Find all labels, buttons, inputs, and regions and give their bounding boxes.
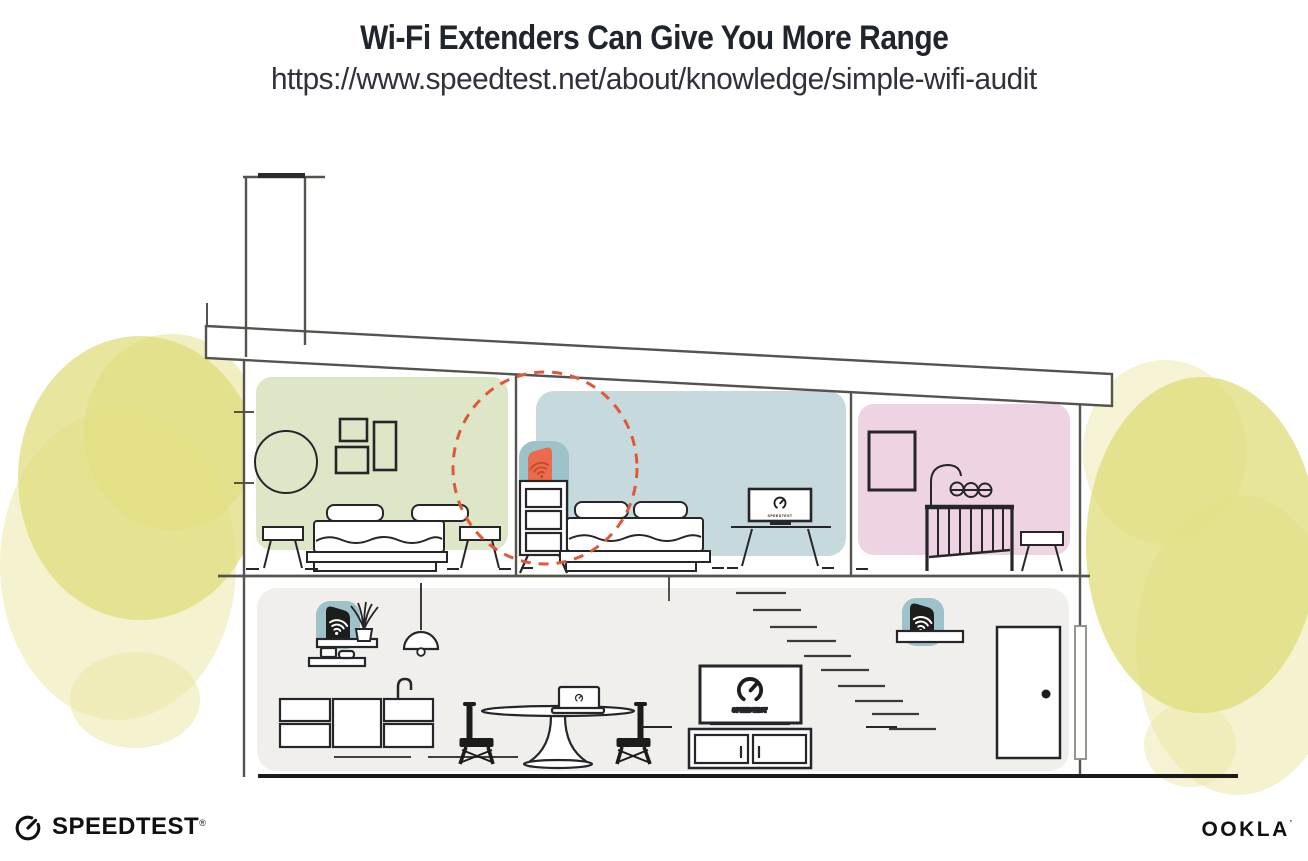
front-door [997,627,1060,758]
wifi-router-icon [326,606,350,640]
laptop [552,687,604,713]
ground-line [258,774,1238,778]
cup [321,648,336,657]
speedtest-wordmark: SPEEDTEST® [52,812,206,842]
source-url: https://www.speedtest.net/about/knowledg… [271,61,1037,97]
door-frame [1075,626,1086,759]
right-tree-foliage [1083,360,1308,795]
bed [560,502,710,571]
ookla-logo: OOKLA’ [1201,818,1292,842]
trademark-symbol: ® [199,818,206,828]
speedtest-gauge-icon [14,812,44,842]
header: Wi-Fi Extenders Can Give You More Range … [0,20,1308,97]
speedtest-logo: SPEEDTEST® [14,812,206,842]
tv-screen-label: SPEEDTEST [768,514,793,518]
page-title: Wi-Fi Extenders Can Give You More Range [360,20,948,57]
ookla-wordmark: OOKLA [1201,818,1289,841]
trademark-symbol: ’ [1290,819,1292,830]
door-knob [1042,690,1051,699]
tv-screen-label: SPEEDTEST [732,708,767,714]
tv-screen [700,666,801,723]
tv-cabinet [689,729,811,768]
house-cross-section-illustration: SPEEDTEST [0,0,1308,861]
left-tree-foliage [0,334,262,748]
bowl [339,651,354,658]
